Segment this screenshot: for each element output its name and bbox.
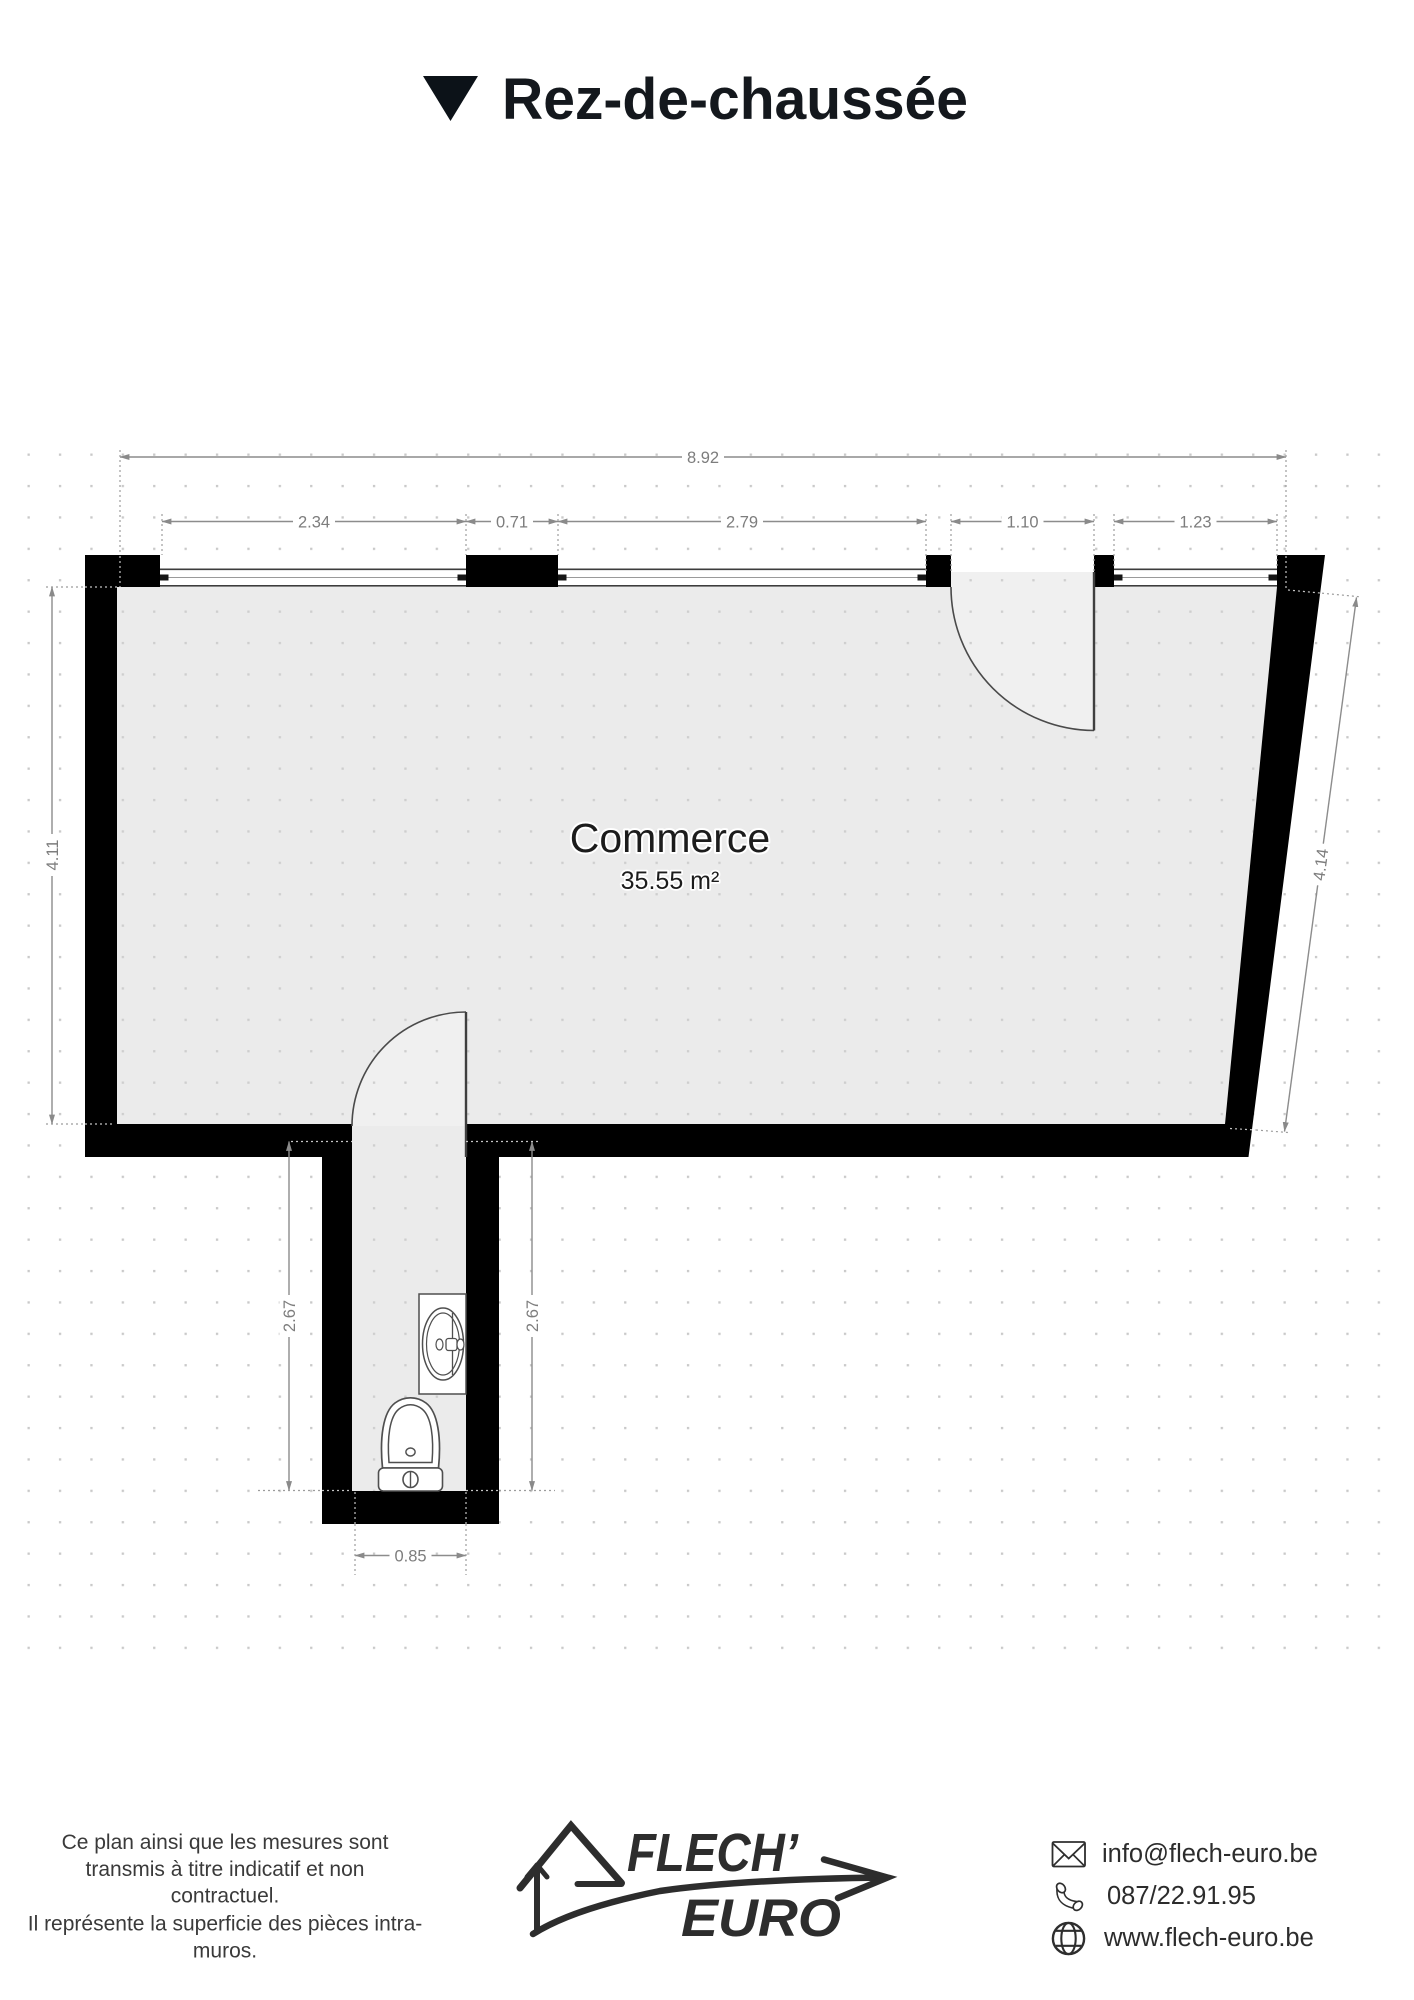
svg-text:FLECH’: FLECH’ bbox=[627, 1823, 799, 1883]
svg-text:8.92: 8.92 bbox=[687, 449, 719, 467]
svg-text:2.79: 2.79 bbox=[726, 513, 758, 531]
svg-text:transmis à titre indicatif et: transmis à titre indicatif et non bbox=[86, 1858, 365, 1881]
svg-text:0.71: 0.71 bbox=[496, 513, 528, 531]
svg-text:4.11: 4.11 bbox=[44, 840, 62, 871]
svg-text:2.67: 2.67 bbox=[281, 1300, 299, 1332]
svg-text:087/22.91.95: 087/22.91.95 bbox=[1107, 1882, 1256, 1910]
svg-text:contractuel.: contractuel. bbox=[171, 1885, 280, 1908]
svg-text:muros.: muros. bbox=[193, 1940, 257, 1963]
svg-text:Commerce: Commerce bbox=[570, 815, 770, 861]
svg-text:Rez-de-chaussée: Rez-de-chaussée bbox=[502, 67, 968, 132]
svg-text:35.55 m²: 35.55 m² bbox=[621, 867, 720, 895]
svg-text:EURO: EURO bbox=[681, 1889, 841, 1948]
svg-text:2.67: 2.67 bbox=[524, 1300, 542, 1332]
svg-text:2.34: 2.34 bbox=[298, 513, 330, 531]
svg-text:1.23: 1.23 bbox=[1179, 513, 1211, 531]
svg-text:Il représente la superficie de: Il représente la superficie des pièces i… bbox=[28, 1913, 423, 1936]
svg-text:www.flech-euro.be: www.flech-euro.be bbox=[1103, 1924, 1314, 1952]
svg-text:0.85: 0.85 bbox=[394, 1547, 426, 1565]
svg-text:1.10: 1.10 bbox=[1006, 513, 1038, 531]
svg-text:info@flech-euro.be: info@flech-euro.be bbox=[1102, 1840, 1318, 1868]
svg-text:Ce plan ainsi que les mesures: Ce plan ainsi que les mesures sont bbox=[62, 1831, 389, 1854]
